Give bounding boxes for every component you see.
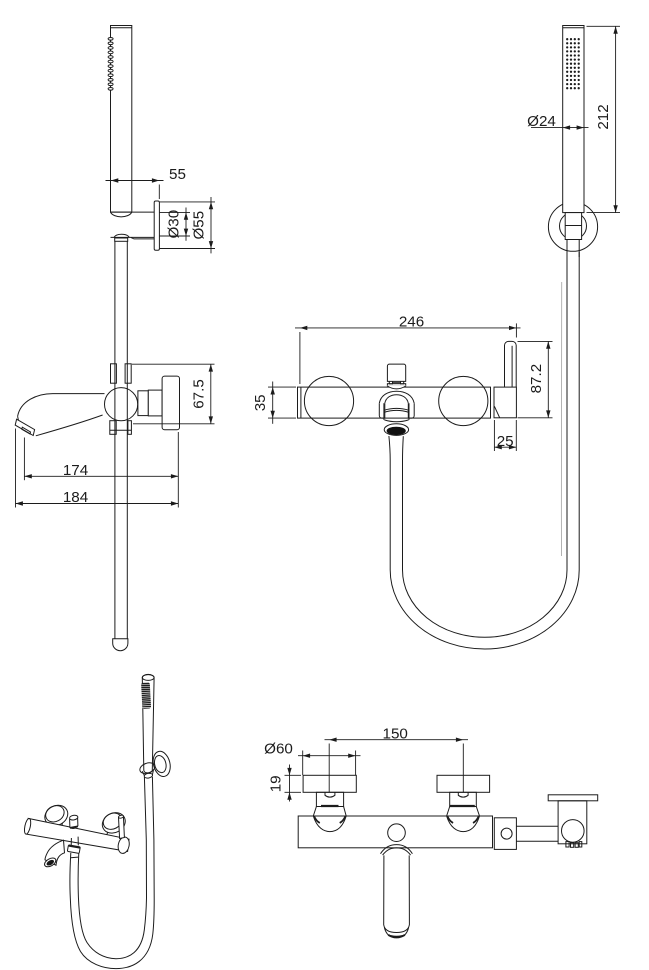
svg-text:Ø55: Ø55 — [191, 211, 208, 240]
svg-text:67.5: 67.5 — [190, 379, 207, 409]
svg-text:150: 150 — [383, 725, 408, 742]
svg-text:246: 246 — [399, 314, 424, 331]
svg-text:Ø30: Ø30 — [166, 210, 183, 239]
svg-text:174: 174 — [63, 462, 88, 479]
svg-text:Ø24: Ø24 — [527, 113, 556, 130]
svg-text:212: 212 — [595, 104, 612, 129]
svg-text:Ø60: Ø60 — [264, 741, 293, 758]
svg-text:55: 55 — [169, 166, 186, 183]
svg-text:19: 19 — [268, 775, 285, 792]
svg-text:35: 35 — [252, 394, 269, 411]
svg-text:87.2: 87.2 — [528, 364, 545, 394]
svg-text:184: 184 — [63, 489, 88, 506]
svg-text:25: 25 — [497, 433, 514, 450]
